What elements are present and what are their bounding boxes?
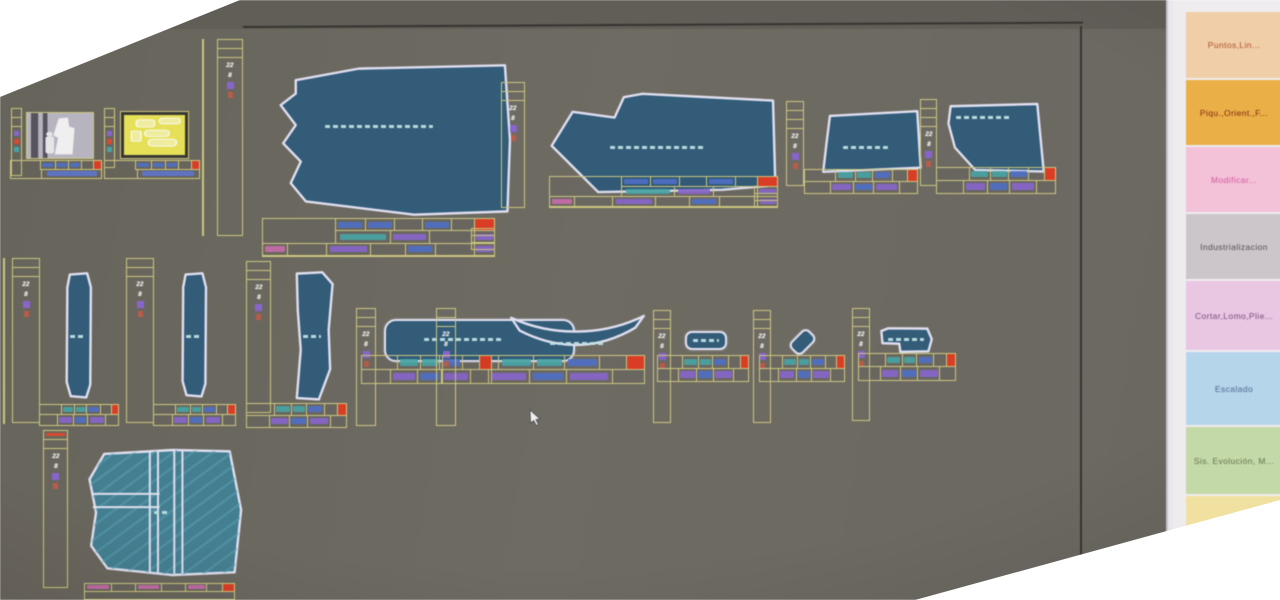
menu-button-piquetes-orient[interactable]: Piqu.,Orient.,F... xyxy=(1186,80,1280,145)
piece-size-strip-sleeve[interactable]: 228 xyxy=(501,82,525,208)
pattern-piece-yoke-left[interactable] xyxy=(812,107,924,176)
piece-size-strip-band-3[interactable]: 228 xyxy=(246,261,271,413)
piece-name-label-yoke-left xyxy=(843,146,888,149)
piece-info-table-loop[interactable] xyxy=(759,355,845,382)
piece-info-table-band-3[interactable] xyxy=(246,403,347,428)
model-thumbnail-model-pieces[interactable] xyxy=(120,111,189,159)
piece-name-label-sleeve xyxy=(610,146,705,149)
menu-button-cortar-lomo[interactable]: Cortar,Lomo,Plie... xyxy=(1186,281,1280,350)
piece-info-table-model-pieces[interactable] xyxy=(104,160,200,179)
strip-edge-line xyxy=(202,39,204,236)
photo-background: 228228228228228228228228228228228228228 … xyxy=(0,0,1280,600)
pattern-piece-body-main[interactable] xyxy=(263,57,515,223)
piece-name-label-band-2 xyxy=(186,335,202,338)
piece-info-table-front-panel[interactable] xyxy=(84,583,235,600)
mouse-cursor xyxy=(529,409,543,427)
piece-info-table-sleeve[interactable] xyxy=(549,176,778,208)
piece-size-strip-band-1[interactable]: 228 xyxy=(12,258,40,423)
piece-size-strip-model-pieces[interactable] xyxy=(104,108,115,168)
pattern-canvas[interactable]: 228228228228228228228228228228228228228 xyxy=(0,0,1280,600)
piece-info-table-pocket[interactable] xyxy=(858,353,956,381)
menu-button-escalado[interactable]: Escalado xyxy=(1186,352,1280,425)
piece-name-label-collar xyxy=(550,342,605,345)
piece-name-label-body-main xyxy=(325,125,433,128)
piece-name-label-pocket xyxy=(888,338,924,341)
menu-button-extra[interactable] xyxy=(1186,496,1280,552)
menu-button-puntos[interactable]: Puntos,Lin... xyxy=(1186,12,1280,78)
menu-sidebar: Puntos,Lin...Piqu.,Orient.,F...Modificar… xyxy=(1166,0,1280,600)
piece-info-table-yoke-right[interactable] xyxy=(936,167,1056,194)
piece-info-table-collar[interactable] xyxy=(442,355,645,384)
piece-info-table-body-main[interactable] xyxy=(262,218,495,257)
piece-size-strip-yoke-left[interactable]: 228 xyxy=(786,101,804,186)
pattern-piece-collar[interactable] xyxy=(507,311,648,360)
piece-name-label-yoke-right xyxy=(956,116,1012,119)
piece-name-label-tab xyxy=(693,339,719,342)
pattern-piece-yoke-right[interactable] xyxy=(941,101,1048,176)
piece-size-strip-front-panel[interactable]: 228 xyxy=(43,430,68,588)
piece-name-label-band-3 xyxy=(303,335,321,338)
piece-size-strip-body-main[interactable]: 228 xyxy=(217,39,243,236)
menu-button-modificar[interactable]: Modificar... xyxy=(1186,147,1280,212)
piece-size-strip-yoke-right[interactable]: 228 xyxy=(920,99,937,186)
pattern-piece-loop[interactable] xyxy=(787,327,817,357)
piece-name-label-front-panel xyxy=(154,511,168,514)
strip-edge-line xyxy=(3,258,5,424)
menu-button-sis-evolucion[interactable]: Sis. Evolución, M... xyxy=(1186,427,1280,494)
piece-info-table-yoke-left[interactable] xyxy=(804,169,918,194)
piece-info-table-tab[interactable] xyxy=(657,355,749,382)
cad-screen: 228228228228228228228228228228228228228 … xyxy=(0,0,1280,600)
piece-size-strip-band-2[interactable]: 228 xyxy=(126,258,154,423)
piece-name-label-band-1 xyxy=(70,335,86,338)
menu-button-industrializacion[interactable]: Industrializacion xyxy=(1186,214,1280,279)
piece-info-table-band-2[interactable] xyxy=(153,404,236,426)
model-thumbnail-model-sketch[interactable] xyxy=(26,112,94,159)
piece-info-table-band-1[interactable] xyxy=(39,404,119,426)
piece-info-table-model-sketch[interactable] xyxy=(10,160,102,179)
